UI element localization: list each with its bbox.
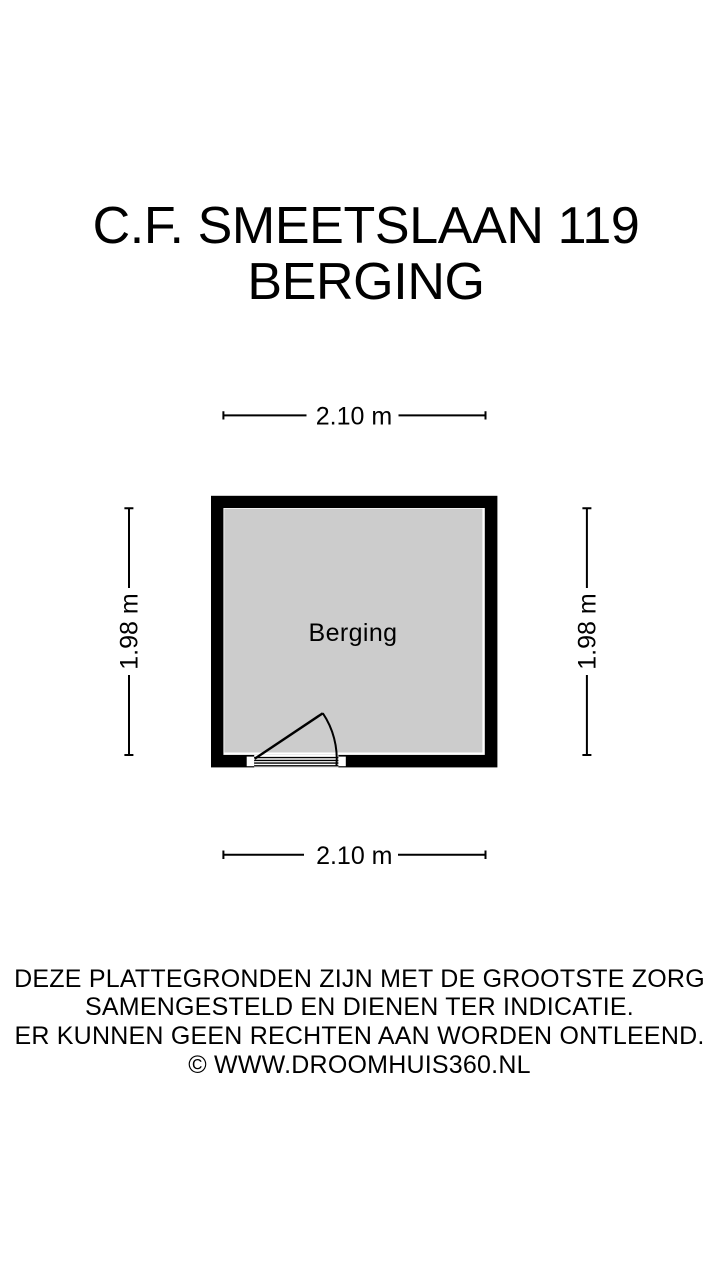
svg-text:1.98 m: 1.98 m [115,593,143,669]
svg-text:1.98 m: 1.98 m [574,593,602,669]
svg-text:Berging: Berging [309,619,398,647]
svg-text:2.10 m: 2.10 m [316,842,392,870]
svg-text:2.10 m: 2.10 m [316,402,392,430]
